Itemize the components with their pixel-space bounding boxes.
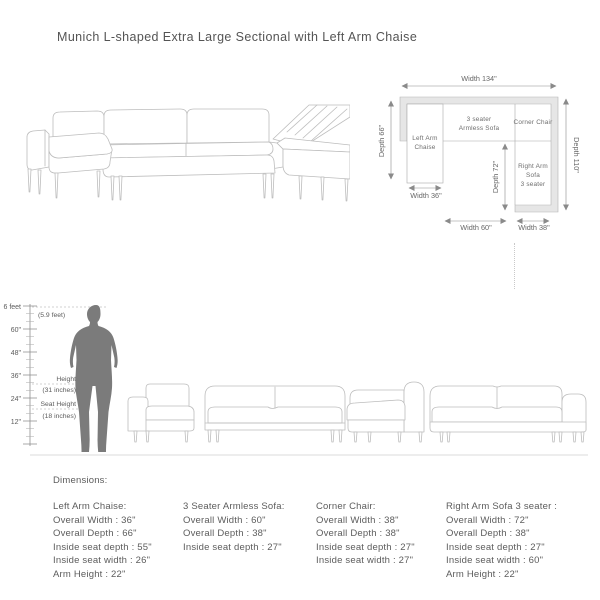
seat-cushions [101, 142, 275, 177]
floorplan-chaise-width-label: Width 36" [410, 191, 442, 200]
dimension-column-title: 3 Seater Armless Sofa: [183, 500, 311, 514]
ruler-label-60: 60" [11, 327, 22, 334]
dimension-line: Overall Width : 36" [53, 514, 181, 528]
floorplan-total-depth-label: Depth 110" [572, 137, 581, 173]
dimensions-column-corner-chair: Corner Chair: Overall Width : 38" Overal… [316, 500, 444, 568]
dimension-line: Inside seat depth : 27" [183, 541, 311, 555]
floorplan-right-name-2: Sofa [526, 172, 540, 179]
dimension-column-title: Left Arm Chaise: [53, 500, 181, 514]
dimension-line: Inside seat depth : 55" [53, 541, 181, 555]
dotted-separator-line [514, 243, 515, 289]
dimensions-column-left-arm-chaise: Left Arm Chaise: Overall Width : 36" Ove… [53, 500, 181, 581]
module-side-views [25, 368, 595, 462]
page-title: Munich L-shaped Extra Large Sectional wi… [57, 30, 417, 44]
right-arm-section [265, 138, 350, 179]
dimension-line: Inside seat width : 27" [316, 554, 444, 568]
dimension-line: Overall Depth : 38" [316, 527, 444, 541]
ruler-label-12: 12" [11, 419, 22, 426]
floorplan-chaise-name-1: Left Arm [412, 135, 437, 142]
dimensions-column-right-arm-sofa: Right Arm Sofa 3 seater : Overall Width … [446, 500, 574, 581]
side-view-left-arm-chaise [128, 384, 194, 442]
dimension-line: Overall Depth : 38" [446, 527, 574, 541]
dimension-line: Inside seat width : 60" [446, 554, 574, 568]
ruler-label-6feet: 6 feet [3, 304, 21, 311]
chaise-section [27, 130, 112, 173]
dimensions-column-armless-sofa: 3 Seater Armless Sofa: Overall Width : 6… [183, 500, 311, 554]
floorplan-right-name-1: Right Arm [518, 163, 548, 170]
ruler-label-48: 48" [11, 350, 22, 357]
dimension-line: Overall Width : 72" [446, 514, 574, 528]
floorplan-chaise-depth-label: Depth 66" [377, 124, 386, 157]
dimension-line: Arm Height : 22" [446, 568, 574, 582]
floorplan-inner-depth-label: Depth 72" [491, 160, 500, 193]
floorplan-corner-name: Corner Chair [514, 119, 554, 126]
sectional-perspective-drawing [15, 97, 350, 212]
dimension-line: Overall Width : 60" [183, 514, 311, 528]
floorplan-total-width-label: Width 134" [461, 74, 497, 83]
floorplan-armless-name-1: 3 seater [467, 116, 492, 123]
side-view-right-arm-sofa [430, 386, 586, 442]
dimension-column-title: Right Arm Sofa 3 seater : [446, 500, 574, 514]
dimensions-heading: Dimensions: [53, 475, 107, 486]
dimension-column-title: Corner Chair: [316, 500, 444, 514]
side-view-armless-sofa [205, 386, 345, 442]
side-view-corner-chair [347, 382, 424, 442]
dimension-line: Inside seat depth : 27" [316, 541, 444, 555]
floorplan-chaise-name-2: Chaise [414, 144, 435, 151]
floorplan-armless-name-2: Armless Sofa [459, 125, 500, 132]
ruler-label-24: 24" [11, 396, 22, 403]
floorplan-right-width-label: Width 38" [518, 223, 550, 232]
dimension-line: Arm Height : 22" [53, 568, 181, 582]
floorplan-armless-width-label: Width 60" [460, 223, 492, 232]
ruler-label-36: 36" [11, 373, 22, 380]
dimension-line: Inside seat width : 26" [53, 554, 181, 568]
dimension-line: Overall Depth : 38" [183, 527, 311, 541]
dimension-line: Overall Width : 38" [316, 514, 444, 528]
floorplan-right-name-3: 3 seater [521, 181, 546, 188]
dimension-line: Overall Depth : 66" [53, 527, 181, 541]
floor-plan-diagram: Width 134" Depth 110" Depth 66" Width 36… [373, 63, 597, 240]
dimension-line: Inside seat depth : 27" [446, 541, 574, 555]
